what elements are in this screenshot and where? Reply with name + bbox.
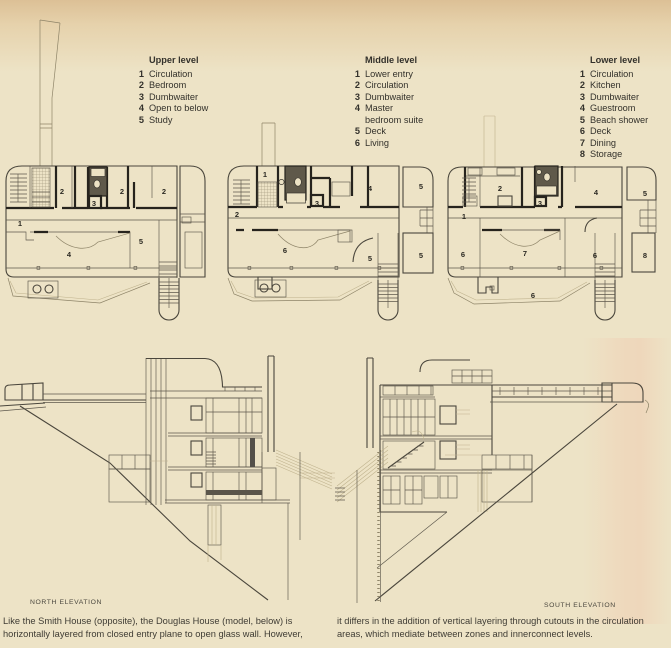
- caption-paragraph-left: Like the Smith House (opposite), the Dou…: [3, 615, 325, 641]
- legend-lower-level: Lower level 1Circulation 2Kitchen 3Dumbw…: [577, 55, 662, 161]
- room-label: 1: [18, 219, 22, 228]
- legend-upper-level: Upper level 1Circulation 2Bedroom 3Dumbw…: [136, 55, 221, 126]
- elevation-south-drawing: [335, 358, 649, 603]
- legend-item: 5Deck: [352, 126, 437, 138]
- legend-item: 6Deck: [577, 126, 662, 138]
- legend-title: Upper level: [149, 55, 221, 67]
- room-label: 4: [368, 184, 373, 193]
- legend-item: 4Master bedroom suite: [352, 103, 437, 126]
- legend-item: 1Lower entry: [352, 69, 437, 81]
- room-label: 6: [283, 246, 287, 255]
- elevation-north-drawing: [0, 356, 335, 600]
- room-label: 2: [498, 184, 502, 193]
- legend-item: 1Circulation: [136, 69, 221, 81]
- room-label: 5: [368, 254, 372, 263]
- room-label: 5: [139, 237, 143, 246]
- legend-item: 4Open to below: [136, 103, 221, 115]
- north-elevation-caption: NORTH ELEVATION: [30, 599, 102, 606]
- room-label: 1: [263, 170, 267, 179]
- plan-middle-drawing: 1 2 3 4 5 6 5 5: [228, 123, 433, 320]
- book-page: 2 2 2 3 1 4 5: [0, 0, 671, 648]
- south-elevation-caption: SOUTH ELEVATION: [544, 602, 616, 609]
- legend-item: 5Study: [136, 115, 221, 127]
- legend-item: 5Beach shower: [577, 115, 662, 127]
- legend-title: Lower level: [590, 55, 662, 67]
- room-label: 2: [120, 187, 124, 196]
- legend-item: 1Circulation: [577, 69, 662, 81]
- room-label: 6: [531, 291, 535, 300]
- room-label: 3: [538, 199, 542, 208]
- room-label: 7: [523, 249, 527, 258]
- room-label: 4: [594, 188, 599, 197]
- legend-item: 7Dining: [577, 138, 662, 150]
- caption-paragraph-right: it differs in the addition of vertical l…: [337, 615, 667, 641]
- room-label: 6: [461, 250, 465, 259]
- room-label: 1: [462, 212, 466, 221]
- room-label: 2: [60, 187, 64, 196]
- legend-title: Middle level: [365, 55, 437, 67]
- legend-item: 2Circulation: [352, 80, 437, 92]
- room-label: 2: [235, 210, 239, 219]
- room-label: 5: [419, 251, 423, 260]
- room-label: 5: [419, 182, 423, 191]
- room-label: 2: [162, 187, 166, 196]
- room-label: 6: [593, 251, 597, 260]
- legend-item: 3Dumbwaiter: [352, 92, 437, 104]
- legend-item: 8Storage: [577, 149, 662, 161]
- legend-item: 4Guestroom: [577, 103, 662, 115]
- legend-item: 3Dumbwaiter: [136, 92, 221, 104]
- room-label: 3: [92, 199, 96, 208]
- legend-item: 6Living: [352, 138, 437, 150]
- legend-item: 2Bedroom: [136, 80, 221, 92]
- room-label: 4: [67, 250, 72, 259]
- room-label: 3: [315, 199, 319, 208]
- legend-item: 2Kitchen: [577, 80, 662, 92]
- architectural-drawing: 2 2 2 3 1 4 5: [0, 0, 671, 648]
- legend-item: 3Dumbwaiter: [577, 92, 662, 104]
- room-label: 5: [643, 189, 647, 198]
- legend-middle-level: Middle level 1Lower entry 2Circulation 3…: [352, 55, 437, 149]
- room-label: 8: [643, 251, 647, 260]
